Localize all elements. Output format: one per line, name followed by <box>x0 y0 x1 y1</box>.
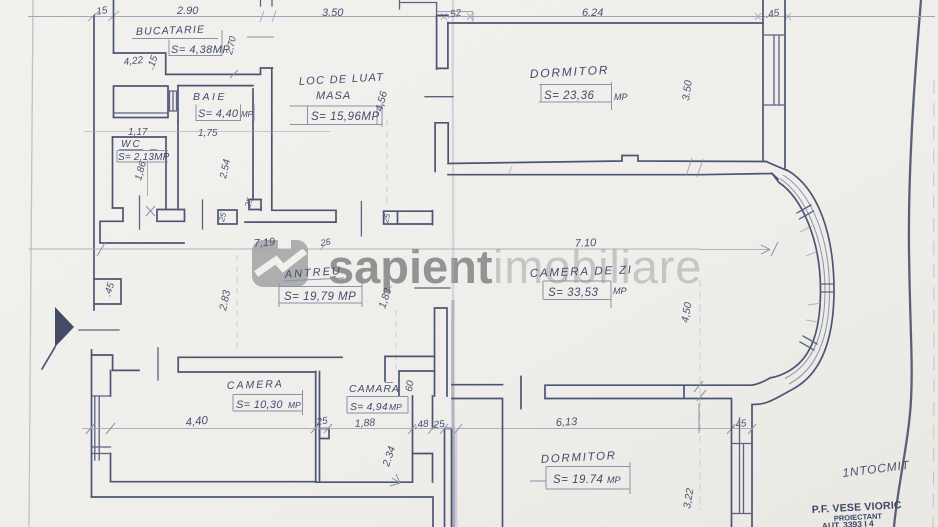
svg-text:S= 4,40: S= 4,40 <box>198 108 239 120</box>
svg-text:3.50: 3.50 <box>322 7 344 19</box>
svg-text:25: 25 <box>315 415 329 428</box>
svg-text:1,88: 1,88 <box>354 417 375 430</box>
svg-text:BAIE: BAIE <box>193 91 227 103</box>
svg-text:CAMARA: CAMARA <box>349 383 400 395</box>
svg-text:6.24: 6.24 <box>582 7 603 19</box>
svg-text:7.10: 7.10 <box>575 237 598 250</box>
svg-text:S= 19,79 MP: S= 19,79 MP <box>284 291 356 303</box>
svg-text:4,22: 4,22 <box>123 55 144 68</box>
svg-text:,48: ,48 <box>414 419 429 431</box>
svg-text:sapient: sapient <box>328 240 493 293</box>
svg-text:S= 10,30: S= 10,30 <box>236 399 283 411</box>
svg-text:MP: MP <box>241 110 254 119</box>
svg-text:7,19: 7,19 <box>253 236 275 250</box>
svg-text:WC: WC <box>121 139 142 150</box>
svg-text:MP: MP <box>389 402 402 412</box>
svg-text:MP: MP <box>288 400 301 410</box>
svg-text:CAMERA: CAMERA <box>227 378 284 392</box>
svg-text:6,13: 6,13 <box>556 416 579 429</box>
svg-text:1,17: 1,17 <box>128 127 148 138</box>
svg-text:.15: .15 <box>93 5 109 18</box>
svg-text:4,40: 4,40 <box>185 415 209 429</box>
svg-text:S= 15,96MP: S= 15,96MP <box>311 111 380 123</box>
svg-text:S= 4,38MP: S= 4,38MP <box>171 44 230 56</box>
svg-text:S= 19.74: S= 19.74 <box>553 474 603 486</box>
svg-text:25: 25 <box>432 419 446 431</box>
svg-text:S= 23,36: S= 23,36 <box>544 90 594 102</box>
svg-text:1,75: 1,75 <box>198 128 218 139</box>
svg-text:S= 33,53: S= 33,53 <box>548 287 598 299</box>
svg-text:60: 60 <box>404 379 417 392</box>
svg-text:MP: MP <box>613 286 627 296</box>
svg-text:MP: MP <box>607 475 621 485</box>
svg-text:S= 2,13MP: S= 2,13MP <box>118 152 170 163</box>
svg-text:BUCATARIE: BUCATARIE <box>136 24 206 38</box>
svg-text:MASA: MASA <box>316 90 351 102</box>
svg-text:MP: MP <box>614 92 628 102</box>
svg-text:2.90: 2.90 <box>176 5 199 17</box>
svg-text:S= 4,94: S= 4,94 <box>350 401 388 413</box>
